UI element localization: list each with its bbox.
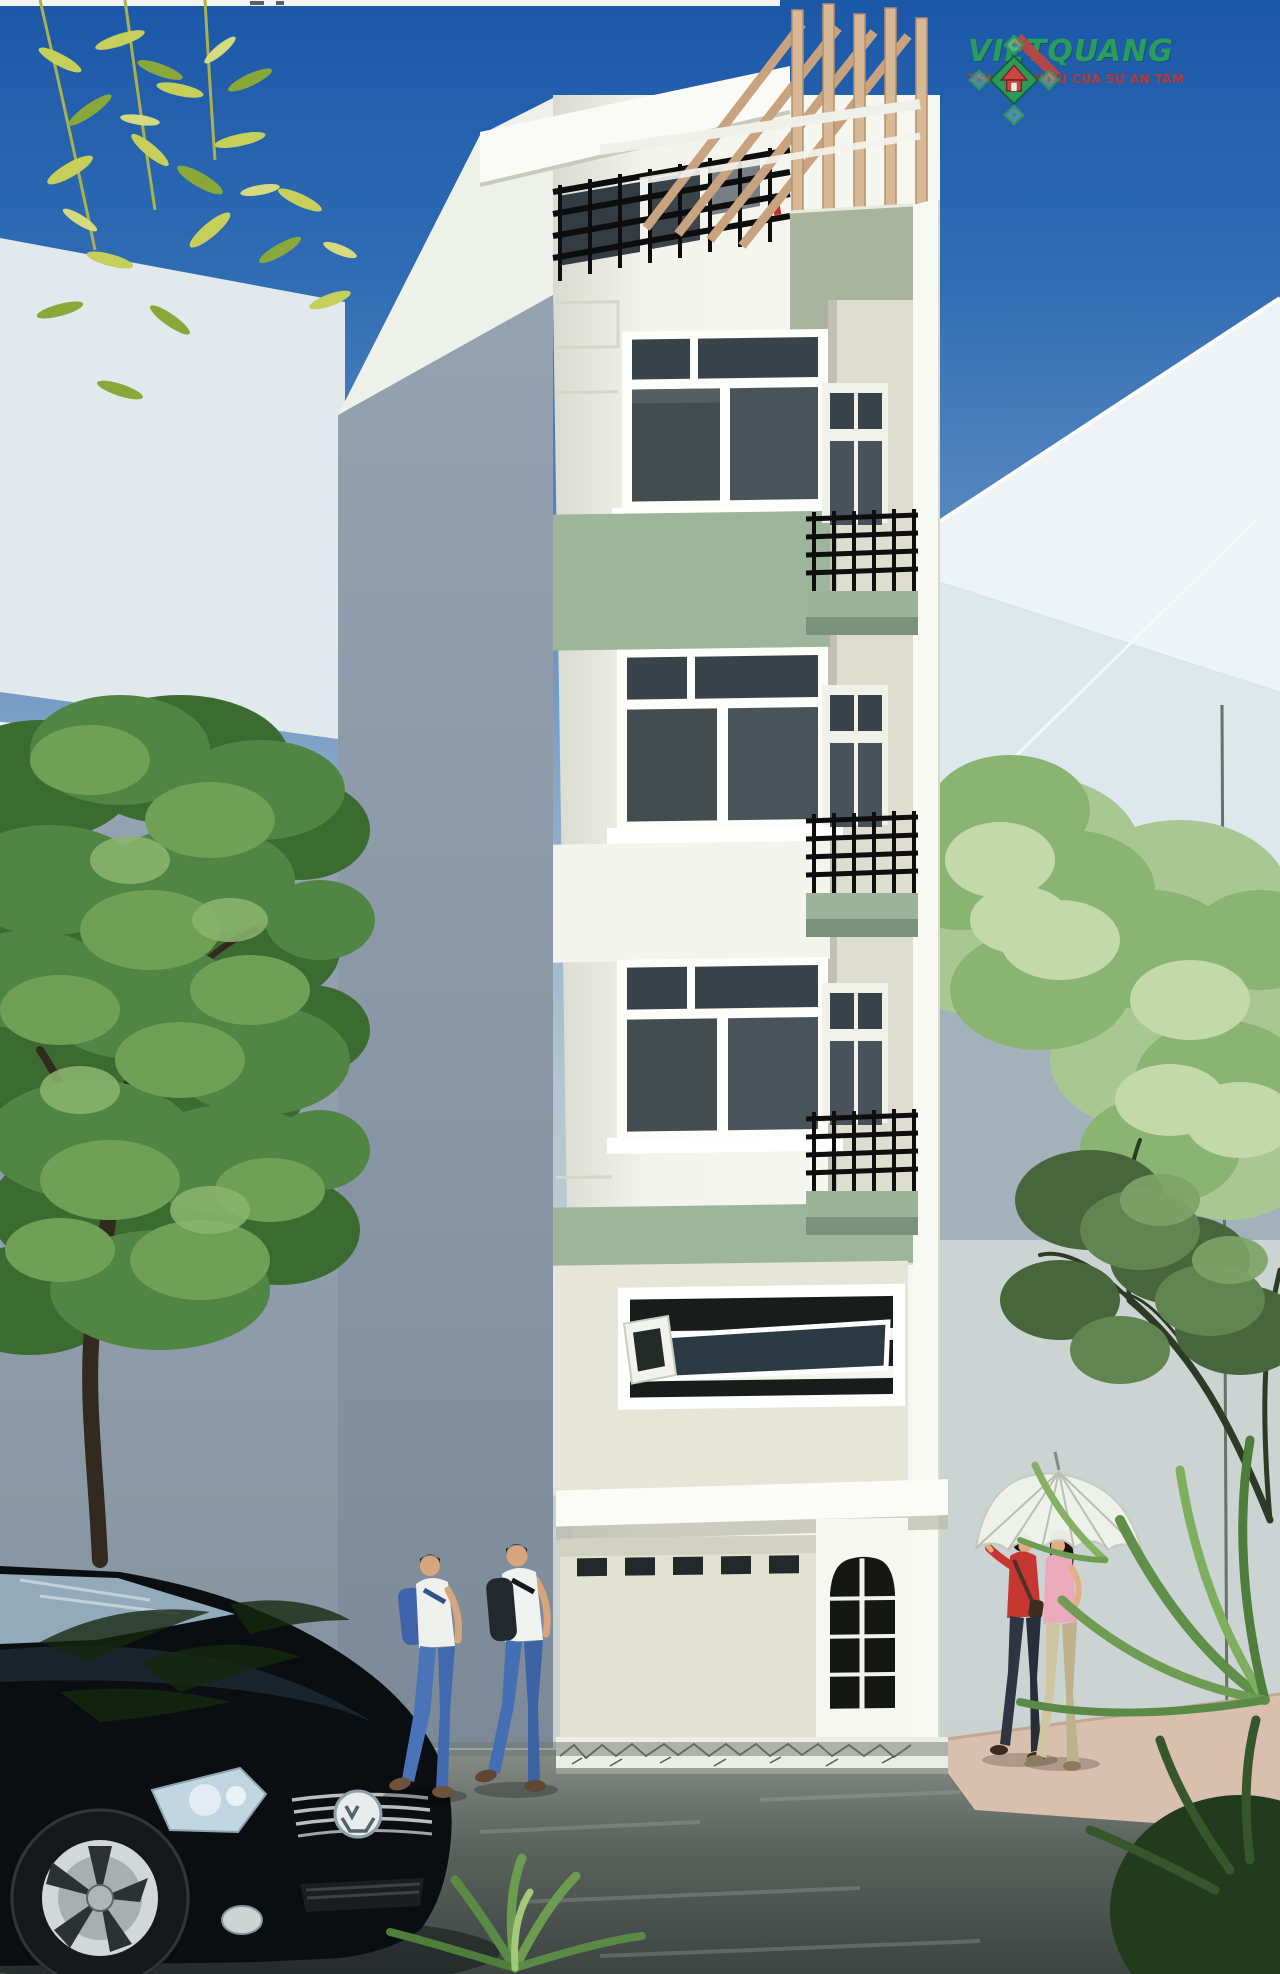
window-floor3	[607, 647, 843, 844]
green-band	[553, 511, 830, 651]
brand-logo: VIETQUANG THƯƠNG HIỆU CỦA SỰ AN TÂM	[968, 34, 1184, 86]
window-floor2	[607, 957, 843, 1154]
scene-graphic	[0, 0, 1280, 1974]
townhouse-building	[338, 4, 948, 1774]
arched-entry-door[interactable]	[830, 1556, 895, 1708]
architectural-rendering: VIETQUANG THƯƠNG HIỆU CỦA SỰ AN TÂM	[0, 0, 1280, 1974]
window-floor4	[612, 329, 838, 526]
ground-floor	[556, 1479, 948, 1750]
car-foglight	[222, 1906, 262, 1934]
mezzanine	[553, 1261, 908, 1496]
brand-emblem-icon	[968, 34, 1060, 126]
side-wall	[338, 295, 553, 1748]
